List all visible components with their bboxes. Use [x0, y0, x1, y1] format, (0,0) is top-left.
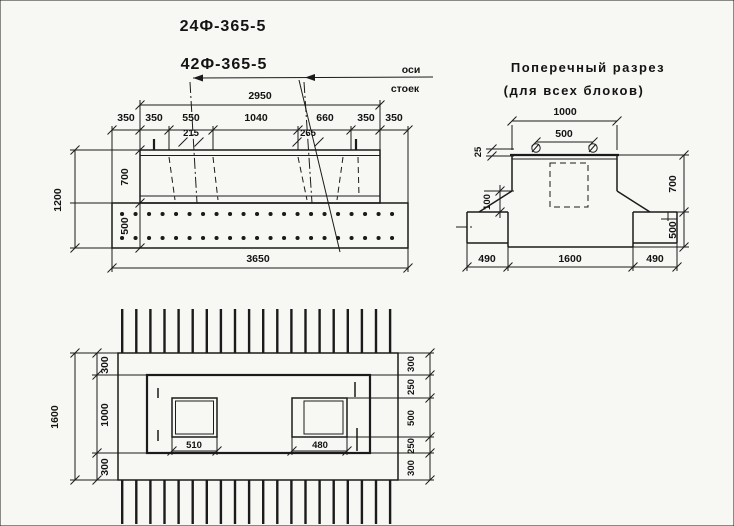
svg-text:25: 25: [473, 146, 484, 157]
svg-text:700: 700: [667, 175, 679, 193]
svg-text:1040: 1040: [244, 112, 268, 124]
svg-text:300: 300: [99, 458, 111, 476]
svg-text:3650: 3650: [246, 253, 270, 265]
svg-text:300: 300: [406, 460, 417, 476]
hidden-socket: [550, 163, 588, 207]
svg-text:350: 350: [145, 112, 163, 124]
plan-dims-right: 300 250 500 250 300: [347, 349, 435, 485]
dim-row-top: 350 350 550 1040 660 350 350: [108, 112, 413, 203]
plan-dims-left: 1600 300 1000 300: [49, 349, 147, 485]
svg-text:490: 490: [478, 253, 496, 265]
svg-text:550: 550: [182, 112, 200, 124]
svg-text:480: 480: [312, 440, 328, 451]
haunch-right: [617, 191, 650, 212]
drawing-sheet: 24Ф-365-5 42Ф-365-5: [0, 0, 734, 526]
svg-text:350: 350: [385, 112, 403, 124]
dim-500-loops: 500: [532, 128, 598, 147]
paper-background: [0, 0, 734, 526]
dim-25-lip: 25: [473, 145, 514, 161]
svg-text:500: 500: [667, 221, 679, 239]
svg-text:1000: 1000: [99, 403, 111, 427]
svg-text:500: 500: [119, 217, 131, 235]
svg-text:700: 700: [119, 168, 131, 186]
plan-pedestal: [147, 375, 370, 453]
block-mark-2: 42Ф-365-5: [181, 56, 268, 73]
svg-text:250: 250: [406, 379, 417, 395]
dim-socket-widths: 215 265: [179, 128, 324, 147]
svg-text:510: 510: [186, 440, 202, 451]
svg-text:300: 300: [406, 356, 417, 372]
dim-3650: 3650: [108, 248, 413, 273]
block-mark-1: 24Ф-365-5: [180, 18, 267, 35]
elevation-slab: [112, 203, 408, 248]
svg-text:215: 215: [183, 128, 200, 139]
svg-text:100: 100: [482, 194, 493, 210]
svg-text:350: 350: [117, 112, 135, 124]
section-title-line1: Поперечный разрез: [511, 60, 665, 75]
elevation-view: оси стоек 2950 350 350 550: [52, 64, 433, 273]
plan-socket-right: [292, 398, 347, 437]
axes-label-line1: оси: [402, 64, 421, 76]
plan-slab: [118, 353, 398, 480]
svg-text:500: 500: [555, 128, 573, 140]
dim-100-ledge: 100: [482, 185, 514, 218]
svg-text:1600: 1600: [558, 253, 582, 265]
svg-text:350: 350: [357, 112, 375, 124]
plan-view: 1600 300 1000 300 300 250 500 250 300: [49, 331, 435, 502]
svg-text:1000: 1000: [553, 106, 577, 118]
svg-text:300: 300: [99, 356, 111, 374]
plan-socket-left: [172, 398, 217, 437]
svg-text:265: 265: [300, 128, 317, 139]
svg-text:1600: 1600: [49, 405, 61, 429]
section-title-line2: (для всех блоков): [504, 83, 645, 98]
section-cut-line: [299, 80, 340, 252]
dim-heights-right: 700 500: [619, 151, 689, 252]
svg-text:250: 250: [406, 438, 417, 454]
title-block: 24Ф-365-5 42Ф-365-5: [180, 18, 268, 73]
hidden-socket-lines: [169, 157, 359, 200]
cross-section-view: Поперечный разрез (для всех блоков): [456, 60, 689, 272]
svg-text:1200: 1200: [52, 188, 64, 212]
axes-label-line2: стоек: [391, 83, 420, 95]
svg-text:2950: 2950: [248, 90, 272, 102]
svg-text:500: 500: [406, 410, 417, 426]
dim-heights-left: 1200 700 500: [52, 146, 145, 253]
svg-text:490: 490: [646, 253, 664, 265]
elevation-pedestal: [140, 150, 380, 203]
svg-text:660: 660: [316, 112, 334, 124]
